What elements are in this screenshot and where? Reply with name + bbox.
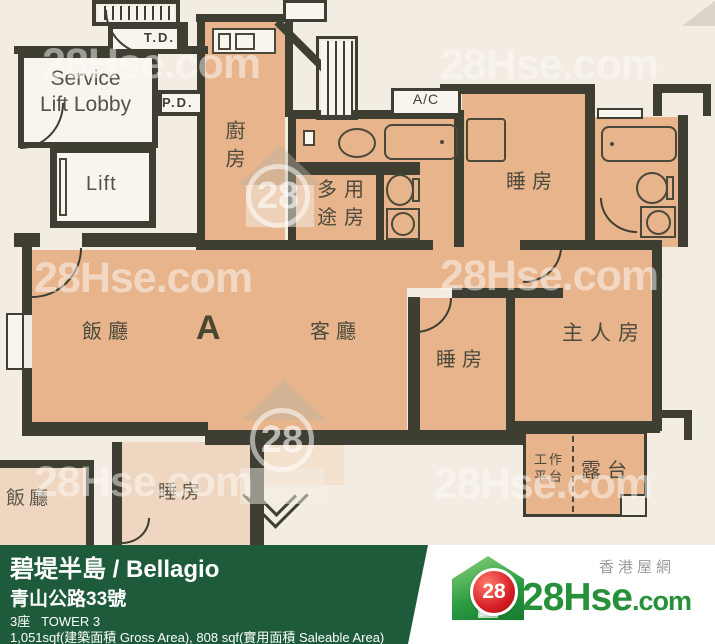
estate-area: 1,051sqf(建築面積 Gross Area), 808 sqf(實用面積 … bbox=[10, 627, 384, 644]
lower-bedroom-label: 睡房 bbox=[158, 482, 204, 505]
louvre-grille bbox=[316, 36, 358, 120]
top-middle-duct bbox=[283, 0, 327, 22]
kitchen-sink-1 bbox=[218, 33, 231, 50]
brand-tagline: 香港屋網 bbox=[599, 556, 675, 577]
lift-rail bbox=[59, 158, 67, 216]
bathtub-a-drain bbox=[440, 140, 444, 144]
floorplan-page: T.D. Service Lift Lobby P.D. Lift A/C bbox=[0, 0, 715, 644]
brand-suffix: .com bbox=[632, 586, 691, 617]
corridor-gap bbox=[433, 240, 520, 250]
balcony-divider bbox=[572, 436, 574, 512]
ac-label: A/C bbox=[413, 91, 439, 107]
living-label: 客廳 bbox=[310, 320, 362, 344]
watermark-text-2: 28Hse.com bbox=[440, 41, 658, 90]
estate-title: 碧堤半島 / Bellagio bbox=[10, 549, 219, 584]
kitchen-label: 廚房 bbox=[221, 120, 245, 176]
balcony-notch bbox=[620, 494, 645, 515]
work-platform-label: 工作 平台 bbox=[534, 451, 564, 485]
lower-dining-label: 飯廳 bbox=[6, 488, 52, 511]
sink-a-basin bbox=[391, 212, 415, 236]
toilet-b-tank bbox=[666, 176, 674, 200]
bathtub-a bbox=[384, 124, 458, 160]
brand-wordmark: 28Hse.com bbox=[522, 576, 691, 620]
strip-window bbox=[303, 130, 315, 146]
bedroom-top-closet bbox=[466, 118, 506, 162]
lift-label: Lift bbox=[86, 172, 117, 196]
bedroom-mid-label: 睡房 bbox=[436, 348, 488, 372]
dining-bay-window bbox=[6, 313, 24, 370]
ac-platform: A/C bbox=[391, 88, 461, 116]
bedroom-top-room bbox=[462, 86, 592, 247]
unit-a-label: A bbox=[196, 308, 221, 349]
master-room bbox=[513, 288, 652, 429]
kitchen-sink-2 bbox=[235, 33, 255, 50]
kitchen-room bbox=[205, 22, 285, 247]
bedroom-top-label: 睡房 bbox=[506, 170, 558, 194]
toilet-b-bowl bbox=[636, 172, 668, 204]
pd-duct: P.D. bbox=[158, 90, 204, 116]
estate-address: 青山公路33號 bbox=[10, 584, 126, 611]
master-label: 主人房 bbox=[562, 321, 646, 346]
logo-28-badge: 28 bbox=[470, 568, 518, 616]
multi-room-label: 多用 途房 bbox=[317, 176, 371, 232]
balcony-label: 露台 bbox=[581, 459, 633, 483]
washbasin-strip bbox=[338, 128, 376, 158]
house-watermark-fragment bbox=[682, 0, 715, 26]
bathroom-b-window bbox=[597, 108, 643, 119]
toilet-a-bowl bbox=[386, 174, 414, 206]
brand-main: 28Hse bbox=[522, 576, 632, 620]
toilet-a-tank bbox=[412, 178, 420, 202]
bathtub-b-drain bbox=[610, 142, 614, 146]
sink-b-basin bbox=[646, 210, 671, 235]
pd-label: P.D. bbox=[162, 95, 194, 110]
dining-label: 飯廳 bbox=[82, 320, 134, 344]
